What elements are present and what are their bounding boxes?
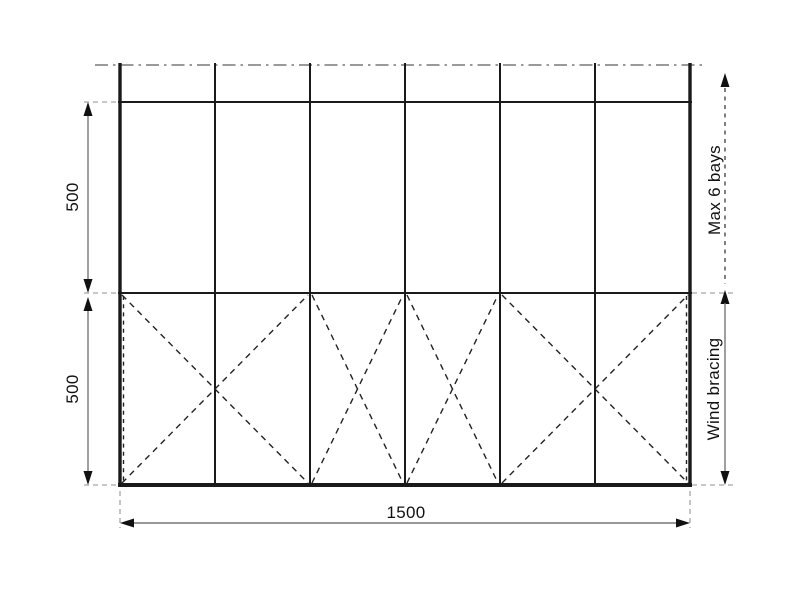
label-max-bays: Max 6 bays [705,145,724,235]
arrow-down-icon [84,471,93,485]
frame-structure [118,63,692,485]
structural-drawing: 500 500 1500 Max 6 bays Wind bracing [0,0,800,599]
dim-left-upper: 500 [63,102,117,293]
arrow-up-icon [84,297,93,311]
dim-right-upper: Max 6 bays [705,73,730,284]
arrow-down-icon [721,471,730,485]
dim-left-lower: 500 [63,297,117,485]
dim-label-lower-height: 500 [63,374,82,403]
arrow-right-icon [676,519,690,528]
arrow-left-icon [120,519,134,528]
dim-label-upper-height: 500 [63,182,82,211]
drawing-canvas: 500 500 1500 Max 6 bays Wind bracing [0,0,800,599]
dim-label-total-width: 1500 [386,503,425,522]
arrow-up-icon [721,73,730,87]
arrow-down-icon [84,279,93,293]
arrow-up-icon [721,290,730,304]
dim-bottom: 1500 [120,491,690,528]
arrow-up-icon [84,102,93,116]
label-wind-bracing: Wind bracing [704,338,723,441]
dim-right-lower: Wind bracing [704,290,730,485]
